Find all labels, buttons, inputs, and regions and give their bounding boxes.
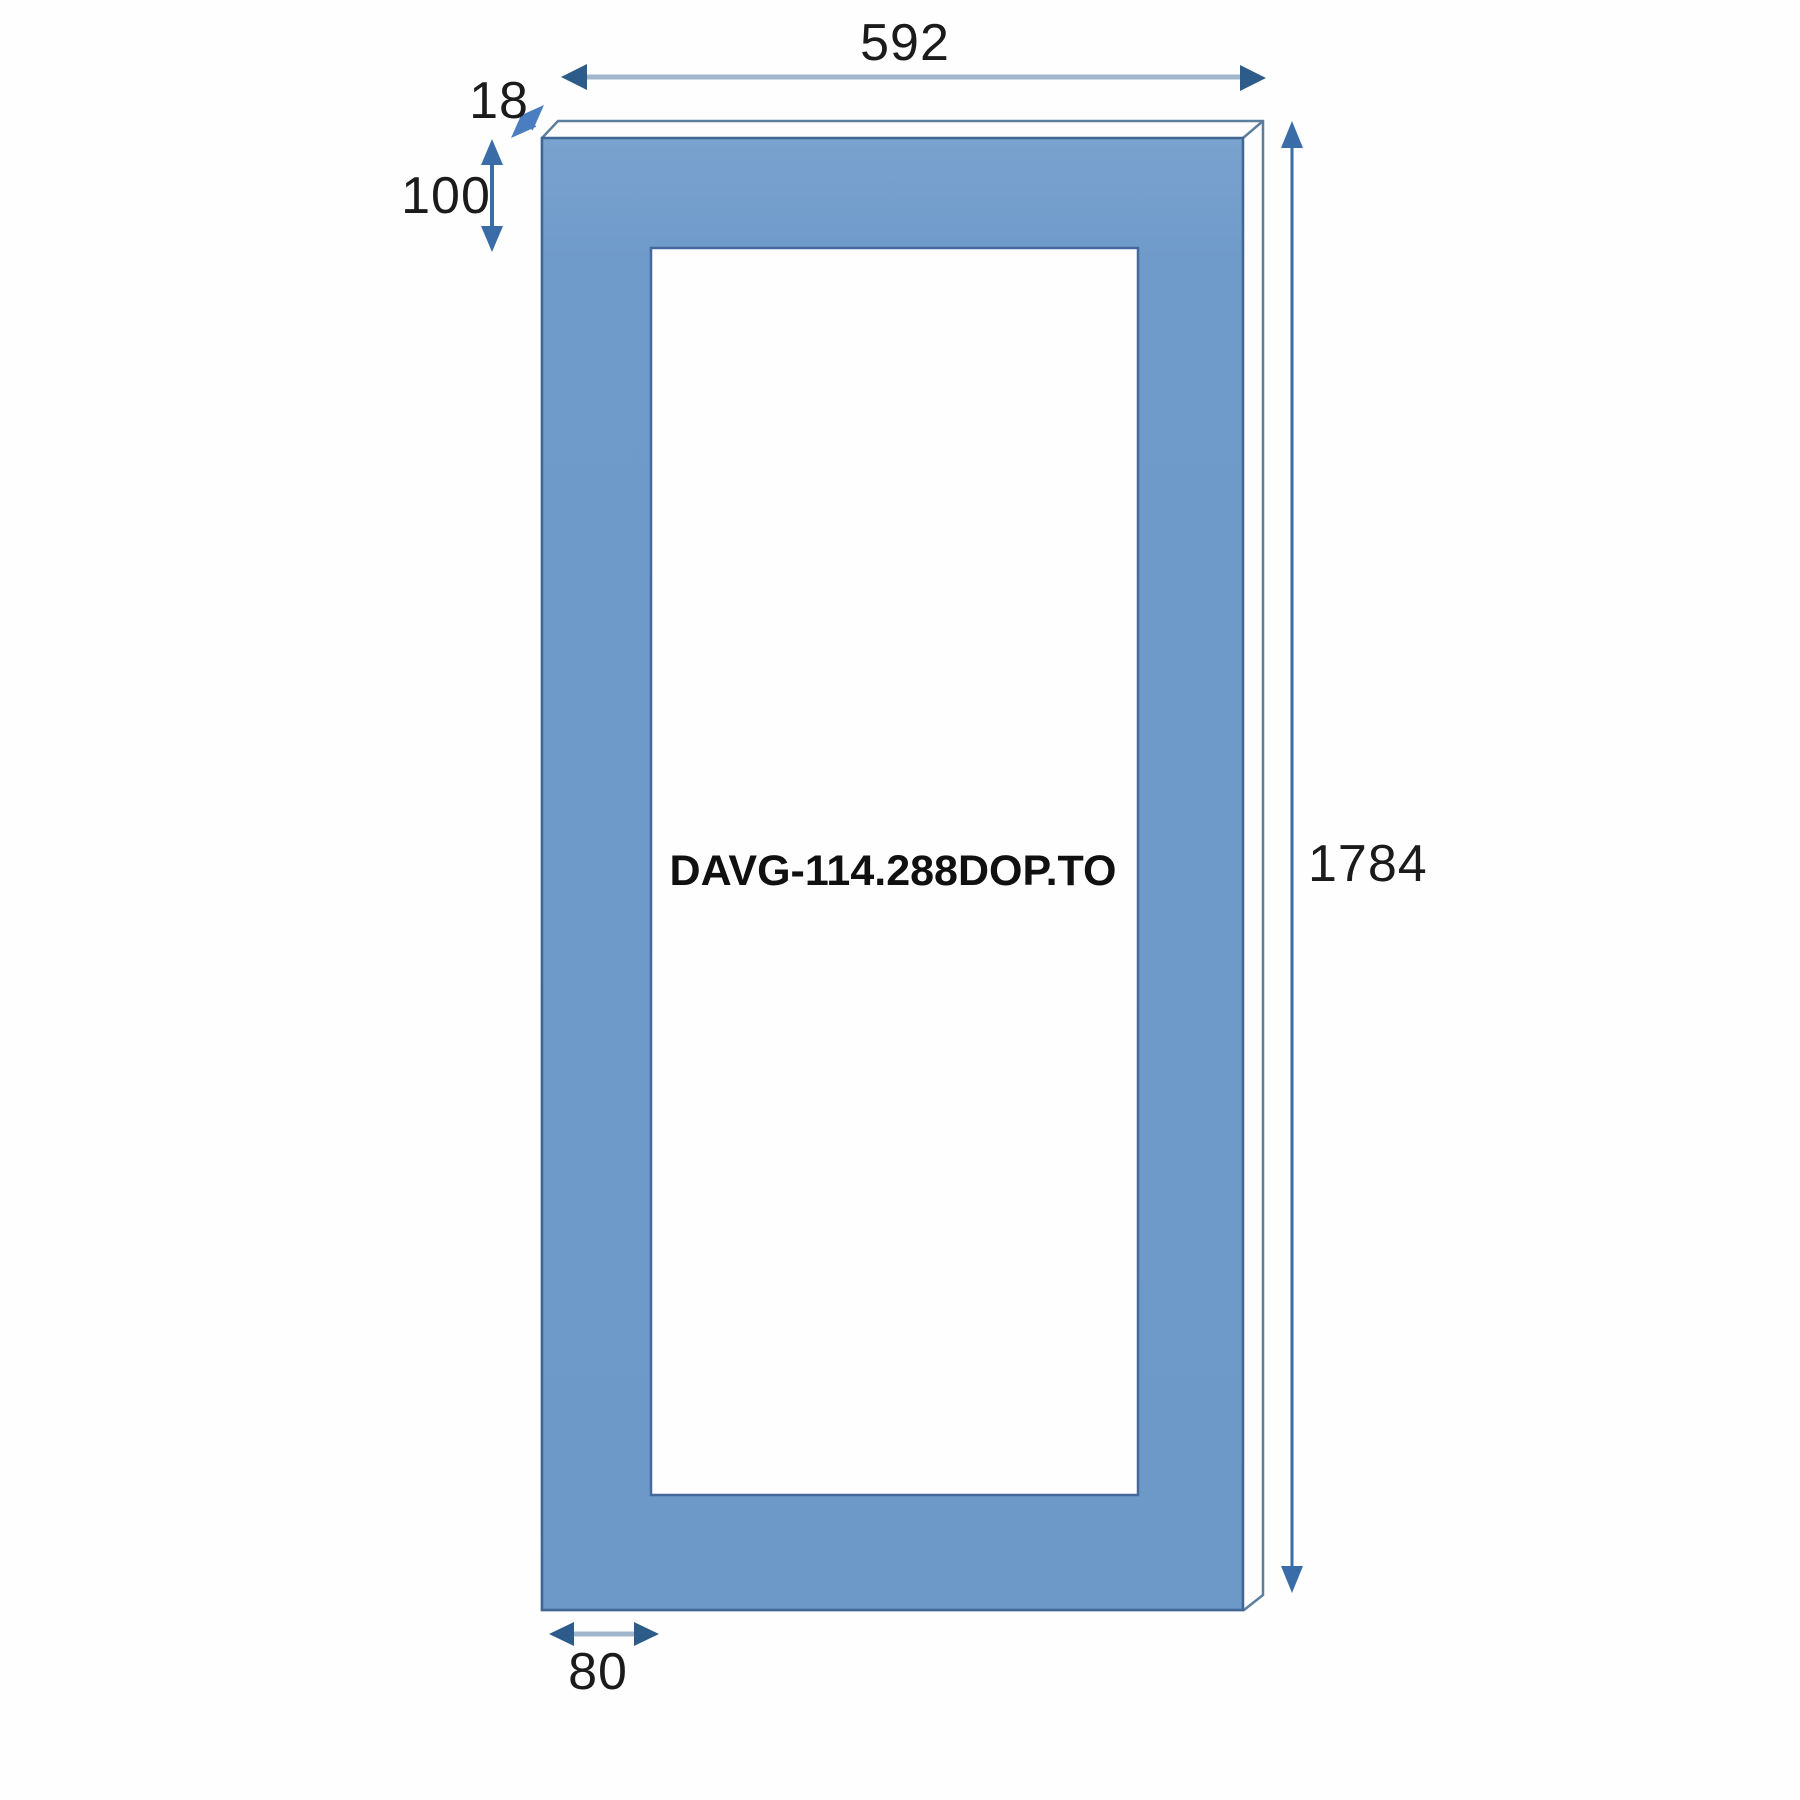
stile-dim-label: 80 <box>568 1643 628 1701</box>
thickness-dim-label: 18 <box>469 72 529 130</box>
panel-dimension-diagram: 592 18 100 1784 80 DAVG-114.288DOP.TO <box>0 0 1800 1800</box>
top-rail-dim-arrowhead-down <box>481 226 503 252</box>
height-dim-arrowhead-down <box>1281 1566 1303 1593</box>
technical-drawing-canvas: 592 18 100 1784 80 DAVG-114.288DOP.TO <box>0 0 1800 1800</box>
height-dim-arrowhead-up <box>1281 121 1303 148</box>
stile-dim-arrowhead-right <box>634 1622 659 1646</box>
width-dim-arrowhead-right <box>1240 65 1266 91</box>
width-dim-label: 592 <box>860 14 950 72</box>
top-rail-dim-label: 100 <box>401 167 491 225</box>
height-dim-label: 1784 <box>1308 835 1428 893</box>
part-number-label: DAVG-114.288DOP.TO <box>670 847 1117 895</box>
width-dim-arrowhead-left <box>561 64 587 90</box>
top-rail-dim-arrowhead-up <box>481 139 503 165</box>
